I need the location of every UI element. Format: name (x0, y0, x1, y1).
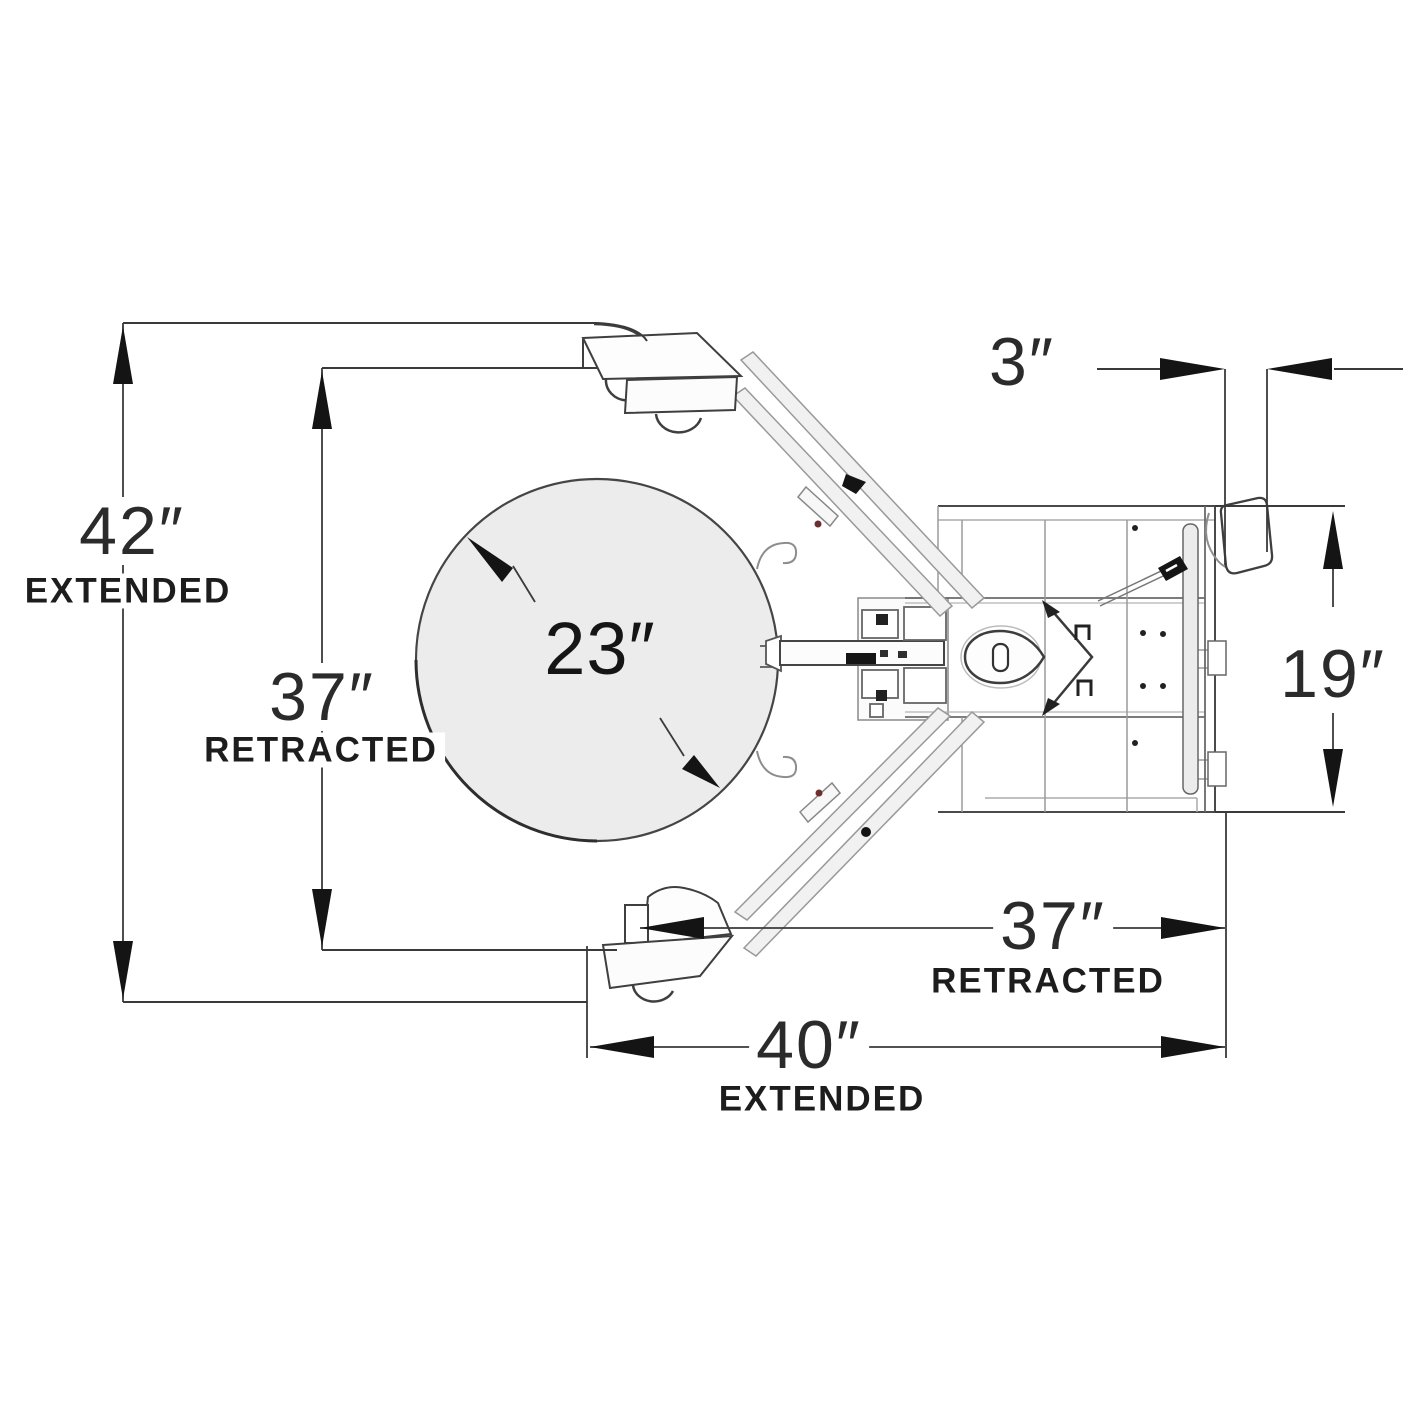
body-frame (905, 506, 1226, 812)
caster-offset-label: 3″ (982, 328, 1062, 396)
bottom-clamp-arm (735, 708, 984, 956)
mast-carriage (760, 598, 948, 720)
pump-handle (961, 626, 1044, 688)
top-clamp-arm (733, 352, 984, 616)
length-retracted-value-label: 37″ (993, 892, 1113, 960)
width-extended-value-label: 42″ (72, 497, 192, 565)
width-retracted-word-label: RETRACTED (197, 733, 445, 768)
top-gripper (583, 324, 741, 432)
drawing-canvas: 42″ EXTENDED 37″ RETRACTED 23″ 3″ 19″ 37… (0, 0, 1408, 1408)
bottom-gripper (603, 887, 732, 1001)
body-width-label: 19″ (1273, 640, 1393, 708)
length-extended-value-label: 40″ (749, 1011, 869, 1079)
drum-diameter-label: 23″ (544, 612, 656, 686)
length-extended-word-label: EXTENDED (712, 1082, 933, 1117)
line-art (0, 0, 1408, 1408)
length-retracted-word-label: RETRACTED (924, 964, 1172, 999)
width-retracted-value-label: 37″ (262, 663, 382, 731)
width-extended-word-label: EXTENDED (18, 574, 239, 609)
